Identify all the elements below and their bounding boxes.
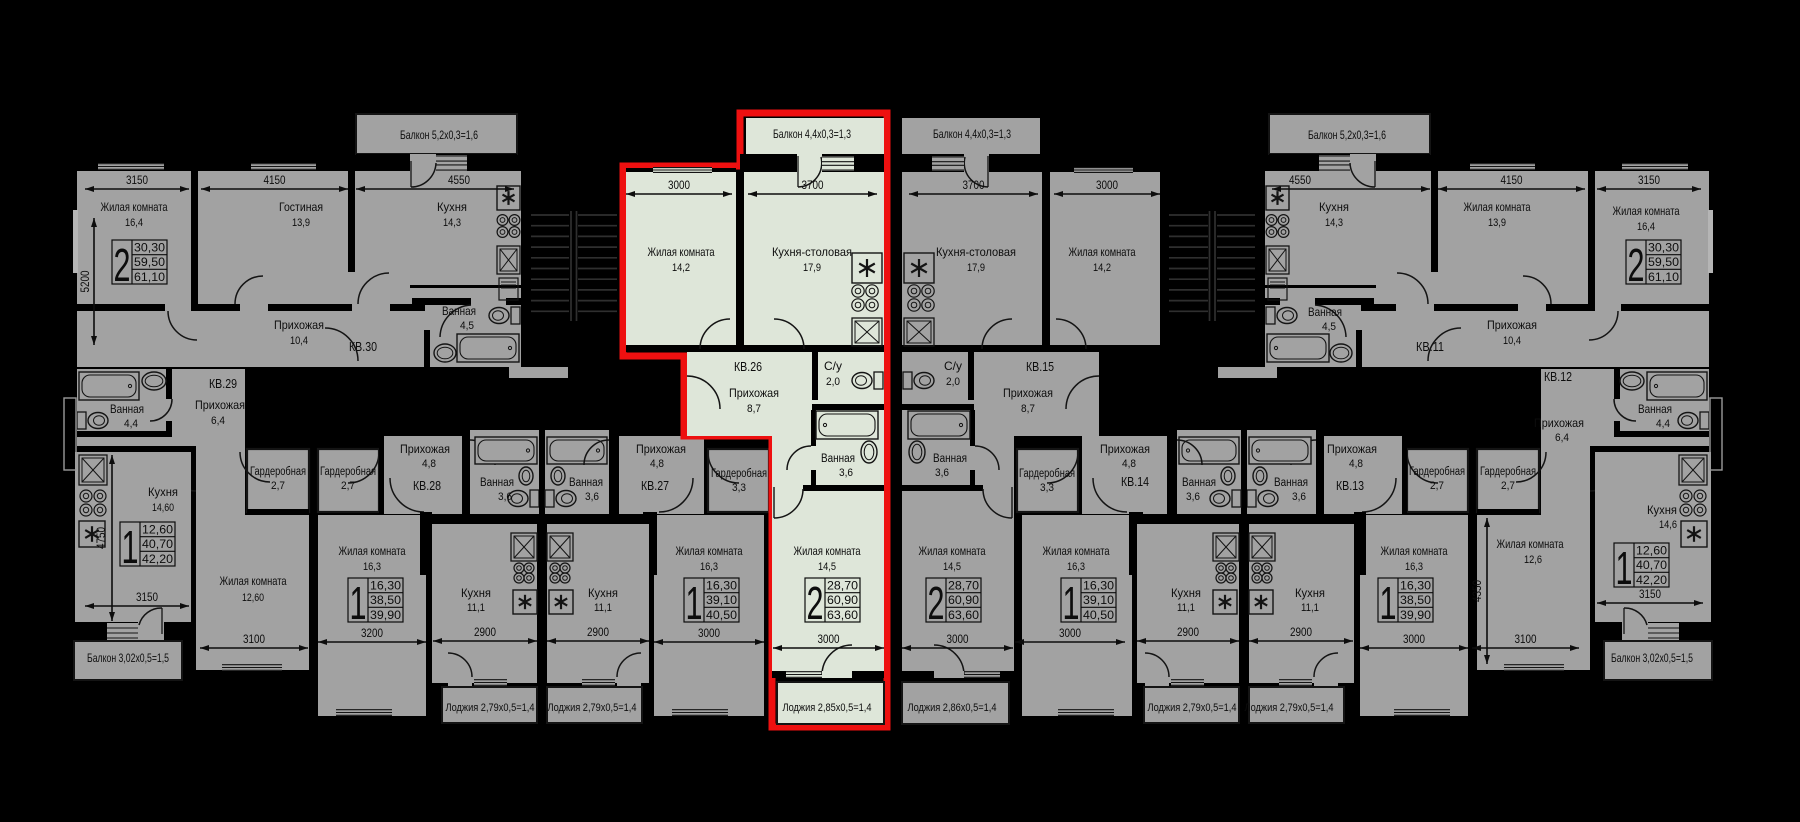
svg-text:КВ.26: КВ.26 (734, 360, 762, 374)
svg-text:Лоджия 2,86х0,5=1,4: Лоджия 2,86х0,5=1,4 (908, 702, 997, 714)
svg-text:Лоджия 2,79х0,5=1,4: Лоджия 2,79х0,5=1,4 (1245, 702, 1334, 714)
svg-text:17,9: 17,9 (967, 262, 985, 274)
svg-text:Кухня: Кухня (148, 485, 178, 499)
svg-text:3,6: 3,6 (585, 491, 599, 503)
svg-text:Ванная: Ванная (1308, 305, 1342, 319)
svg-text:КВ.14: КВ.14 (1121, 475, 1149, 489)
svg-text:3000: 3000 (818, 632, 840, 646)
svg-text:2900: 2900 (474, 625, 496, 639)
svg-text:61,10: 61,10 (1648, 272, 1679, 284)
svg-text:Ванная: Ванная (1638, 402, 1672, 416)
svg-text:42,20: 42,20 (142, 554, 173, 566)
svg-text:4150: 4150 (264, 173, 286, 187)
svg-text:6,4: 6,4 (211, 415, 225, 427)
svg-text:1: 1 (122, 521, 139, 573)
svg-text:16,30: 16,30 (1400, 581, 1431, 593)
svg-text:Кухня: Кухня (1295, 586, 1325, 600)
svg-text:2,7: 2,7 (1501, 480, 1515, 492)
svg-text:Кухня: Кухня (588, 586, 618, 600)
svg-text:63,60: 63,60 (948, 610, 979, 622)
svg-text:Гардеробная: Гардеробная (1019, 468, 1075, 480)
svg-text:4,8: 4,8 (422, 458, 436, 470)
svg-text:40,50: 40,50 (1083, 610, 1114, 622)
svg-text:16,3: 16,3 (700, 561, 718, 573)
svg-text:Балкон 4,4х0,3=1,3: Балкон 4,4х0,3=1,3 (933, 127, 1011, 141)
svg-text:4,5: 4,5 (1322, 321, 1336, 333)
svg-text:Ванная: Ванная (1182, 477, 1216, 489)
svg-text:30,30: 30,30 (134, 243, 165, 255)
svg-text:Жилая комната: Жилая комната (1381, 544, 1448, 558)
svg-text:60,90: 60,90 (948, 595, 979, 607)
svg-text:3,6: 3,6 (1186, 491, 1200, 503)
svg-text:3,6: 3,6 (839, 467, 853, 479)
svg-text:39,10: 39,10 (1083, 595, 1114, 607)
svg-text:Кухня-столовая: Кухня-столовая (936, 245, 1016, 259)
svg-text:КВ.13: КВ.13 (1336, 479, 1364, 493)
svg-text:1: 1 (686, 577, 703, 629)
svg-text:Кухня: Кухня (437, 200, 467, 214)
svg-text:КВ.15: КВ.15 (1026, 360, 1054, 374)
svg-text:4,8: 4,8 (1349, 458, 1363, 470)
svg-text:Жилая комната: Жилая комната (648, 245, 715, 259)
svg-text:2900: 2900 (587, 625, 609, 639)
svg-text:Гостиная: Гостиная (279, 200, 323, 214)
svg-text:5200: 5200 (78, 270, 92, 292)
svg-text:11,1: 11,1 (1177, 602, 1195, 614)
svg-text:Ванная: Ванная (110, 402, 144, 416)
svg-text:12,60: 12,60 (142, 525, 173, 537)
svg-text:4,8: 4,8 (650, 458, 664, 470)
svg-text:3150: 3150 (126, 173, 148, 187)
svg-text:1: 1 (1616, 542, 1633, 594)
svg-text:3100: 3100 (1515, 632, 1537, 646)
svg-text:Жилая комната: Жилая комната (794, 544, 861, 558)
svg-text:59,50: 59,50 (1648, 257, 1679, 269)
svg-text:2: 2 (114, 239, 131, 291)
svg-text:Балкон 5,2х0,3=1,6: Балкон 5,2х0,3=1,6 (1308, 128, 1386, 142)
svg-text:Прихожая: Прихожая (1003, 386, 1053, 400)
svg-text:Жилая комната: Жилая комната (1069, 245, 1136, 259)
svg-text:3,3: 3,3 (732, 482, 746, 494)
svg-text:1: 1 (1063, 577, 1080, 629)
svg-text:3,6: 3,6 (935, 467, 949, 479)
svg-text:Жилая комната: Жилая комната (676, 544, 743, 558)
svg-text:40,70: 40,70 (1636, 560, 1667, 572)
svg-text:59,50: 59,50 (134, 257, 165, 269)
svg-text:Жилая комната: Жилая комната (339, 544, 406, 558)
svg-text:12,6: 12,6 (1524, 554, 1542, 566)
svg-text:4,5: 4,5 (460, 320, 474, 332)
svg-text:16,3: 16,3 (363, 561, 381, 573)
svg-text:16,4: 16,4 (1637, 221, 1655, 233)
svg-text:Жилая комната: Жилая комната (1043, 544, 1110, 558)
svg-text:16,30: 16,30 (706, 581, 737, 593)
svg-text:42,20: 42,20 (1636, 575, 1667, 587)
svg-text:38,50: 38,50 (1400, 595, 1431, 607)
svg-text:Кухня: Кухня (1647, 503, 1677, 517)
svg-text:2: 2 (807, 577, 824, 629)
svg-text:КВ.27: КВ.27 (641, 479, 669, 493)
svg-text:14,5: 14,5 (818, 561, 836, 573)
svg-text:КВ.30: КВ.30 (349, 340, 377, 354)
svg-text:14,3: 14,3 (1325, 217, 1343, 229)
svg-text:Прихожая: Прихожая (400, 442, 450, 456)
svg-text:Кухня: Кухня (1319, 200, 1349, 214)
svg-text:Ванная: Ванная (821, 453, 855, 465)
svg-text:КВ.11: КВ.11 (1416, 340, 1444, 354)
svg-text:2,7: 2,7 (341, 480, 355, 492)
svg-text:4,8: 4,8 (1122, 458, 1136, 470)
svg-text:4750: 4750 (94, 527, 108, 549)
svg-text:3000: 3000 (1096, 178, 1118, 192)
svg-text:12,60: 12,60 (242, 592, 264, 604)
svg-text:2,7: 2,7 (1430, 480, 1444, 492)
svg-text:4150: 4150 (1501, 173, 1523, 187)
svg-text:Кухня-столовая: Кухня-столовая (772, 245, 852, 259)
svg-text:8,7: 8,7 (747, 403, 761, 415)
svg-text:2900: 2900 (1177, 625, 1199, 639)
svg-text:4550: 4550 (1289, 173, 1311, 187)
svg-text:Прихожая: Прихожая (636, 442, 686, 456)
svg-text:2,0: 2,0 (946, 376, 960, 388)
svg-text:6,4: 6,4 (1555, 432, 1569, 444)
svg-text:Жилая комната: Жилая комната (1613, 204, 1680, 218)
svg-text:Ванная: Ванная (1274, 477, 1308, 489)
svg-text:Прихожая: Прихожая (274, 318, 324, 332)
svg-text:Ванная: Ванная (480, 477, 514, 489)
svg-text:16,4: 16,4 (125, 217, 143, 229)
svg-text:13,9: 13,9 (1488, 217, 1506, 229)
svg-text:8,7: 8,7 (1021, 403, 1035, 415)
svg-text:16,30: 16,30 (370, 581, 401, 593)
svg-text:12,60: 12,60 (1636, 546, 1667, 558)
svg-text:61,10: 61,10 (134, 272, 165, 284)
svg-text:11,1: 11,1 (594, 602, 612, 614)
svg-text:Прихожая: Прихожая (1487, 318, 1537, 332)
svg-text:30,30: 30,30 (1648, 243, 1679, 255)
svg-text:3150: 3150 (1638, 173, 1660, 187)
svg-text:2,7: 2,7 (271, 480, 285, 492)
svg-text:4550: 4550 (448, 173, 470, 187)
svg-text:16,30: 16,30 (1083, 581, 1114, 593)
svg-text:Жилая комната: Жилая комната (1497, 537, 1564, 551)
svg-text:Прихожая: Прихожая (1534, 416, 1584, 430)
svg-text:3,6: 3,6 (498, 491, 512, 503)
svg-text:Жилая комната: Жилая комната (1464, 200, 1531, 214)
svg-text:17,9: 17,9 (803, 262, 821, 274)
svg-text:3700: 3700 (802, 178, 824, 192)
svg-text:4,4: 4,4 (124, 418, 138, 430)
svg-text:60,90: 60,90 (827, 595, 858, 607)
svg-text:Гардеробная: Гардеробная (1409, 466, 1465, 478)
svg-text:Прихожая: Прихожая (1100, 442, 1150, 456)
svg-text:16,3: 16,3 (1067, 561, 1085, 573)
svg-text:Лоджия 2,79х0,5=1,4: Лоджия 2,79х0,5=1,4 (548, 702, 637, 714)
svg-text:Гардеробная: Гардеробная (250, 466, 306, 478)
svg-text:4,4: 4,4 (1656, 418, 1670, 430)
svg-text:Кухня: Кухня (461, 586, 491, 600)
svg-text:4350: 4350 (1470, 580, 1484, 602)
svg-text:Лоджия 2,79х0,5=1,4: Лоджия 2,79х0,5=1,4 (446, 702, 535, 714)
svg-text:3150: 3150 (136, 590, 158, 604)
svg-text:2,0: 2,0 (826, 376, 840, 388)
svg-text:Жилая комната: Жилая комната (919, 544, 986, 558)
svg-text:Прихожая: Прихожая (729, 386, 779, 400)
svg-text:63,60: 63,60 (827, 610, 858, 622)
svg-text:1: 1 (1380, 577, 1397, 629)
svg-text:39,10: 39,10 (706, 595, 737, 607)
svg-text:14,3: 14,3 (443, 217, 461, 229)
svg-text:3100: 3100 (243, 632, 265, 646)
svg-text:14,6: 14,6 (1659, 519, 1677, 531)
svg-text:3700: 3700 (963, 178, 985, 192)
svg-text:3,3: 3,3 (1040, 482, 1054, 494)
svg-text:39,90: 39,90 (370, 610, 401, 622)
svg-text:28,70: 28,70 (827, 581, 858, 593)
svg-text:Прихожая: Прихожая (1327, 442, 1377, 456)
svg-text:40,70: 40,70 (142, 539, 173, 551)
svg-text:С/у: С/у (944, 359, 962, 373)
svg-text:С/у: С/у (824, 359, 842, 373)
svg-text:Жилая комната: Жилая комната (220, 574, 287, 588)
svg-text:Балкон 3,02х0,5=1,5: Балкон 3,02х0,5=1,5 (87, 651, 169, 665)
svg-text:38,50: 38,50 (370, 595, 401, 607)
svg-text:11,1: 11,1 (1301, 602, 1319, 614)
svg-text:13,9: 13,9 (292, 217, 310, 229)
svg-text:Жилая комната: Жилая комната (101, 200, 168, 214)
svg-text:3000: 3000 (1403, 632, 1425, 646)
svg-text:40,50: 40,50 (706, 610, 737, 622)
svg-text:Ванная: Ванная (442, 304, 476, 318)
svg-text:10,4: 10,4 (290, 335, 308, 347)
svg-text:КВ.29: КВ.29 (209, 377, 237, 391)
svg-text:Лоджия 2,79х0,5=1,4: Лоджия 2,79х0,5=1,4 (1148, 702, 1237, 714)
svg-text:Прихожая: Прихожая (195, 398, 245, 412)
svg-text:Балкон 3,02х0,5=1,5: Балкон 3,02х0,5=1,5 (1611, 651, 1693, 665)
svg-text:Гардеробная: Гардеробная (711, 468, 767, 480)
svg-text:14,5: 14,5 (943, 561, 961, 573)
svg-text:3000: 3000 (668, 178, 690, 192)
svg-text:Кухня: Кухня (1171, 586, 1201, 600)
svg-text:14,2: 14,2 (672, 262, 690, 274)
svg-text:2: 2 (928, 577, 945, 629)
svg-text:14,2: 14,2 (1093, 262, 1111, 274)
svg-text:16,3: 16,3 (1405, 561, 1423, 573)
svg-text:Лоджия 2,85х0,5=1,4: Лоджия 2,85х0,5=1,4 (783, 702, 872, 714)
svg-text:1: 1 (350, 577, 367, 629)
svg-text:39,90: 39,90 (1400, 610, 1431, 622)
svg-text:КВ.28: КВ.28 (413, 479, 441, 493)
svg-text:10,4: 10,4 (1503, 335, 1521, 347)
svg-text:Ванная: Ванная (569, 477, 603, 489)
svg-text:КВ.12: КВ.12 (1544, 370, 1572, 384)
svg-text:Балкон 5,2х0,3=1,6: Балкон 5,2х0,3=1,6 (400, 128, 478, 142)
svg-text:3,6: 3,6 (1292, 491, 1306, 503)
svg-text:28,70: 28,70 (948, 581, 979, 593)
svg-text:14,60: 14,60 (152, 502, 174, 514)
svg-text:Балкон 4,4х0,3=1,3: Балкон 4,4х0,3=1,3 (773, 127, 851, 141)
svg-text:Гардеробная: Гардеробная (1480, 466, 1536, 478)
svg-text:11,1: 11,1 (467, 602, 485, 614)
svg-text:3150: 3150 (1639, 587, 1661, 601)
svg-text:2900: 2900 (1290, 625, 1312, 639)
svg-text:Ванная: Ванная (933, 453, 967, 465)
svg-text:Гардеробная: Гардеробная (320, 466, 376, 478)
svg-text:2: 2 (1628, 239, 1645, 291)
svg-text:3000: 3000 (947, 632, 969, 646)
